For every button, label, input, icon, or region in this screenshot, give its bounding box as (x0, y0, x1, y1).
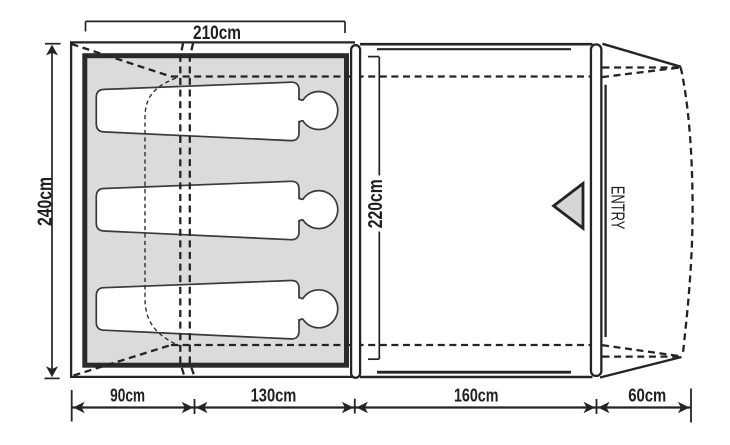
svg-text:ENTRY: ENTRY (608, 186, 629, 230)
svg-text:210cm: 210cm (193, 22, 241, 44)
svg-text:240cm: 240cm (34, 177, 56, 226)
svg-text:60cm: 60cm (628, 386, 666, 406)
svg-text:160cm: 160cm (454, 386, 499, 406)
svg-text:90cm: 90cm (110, 386, 145, 406)
svg-text:220cm: 220cm (365, 179, 387, 228)
svg-text:130cm: 130cm (251, 386, 297, 406)
